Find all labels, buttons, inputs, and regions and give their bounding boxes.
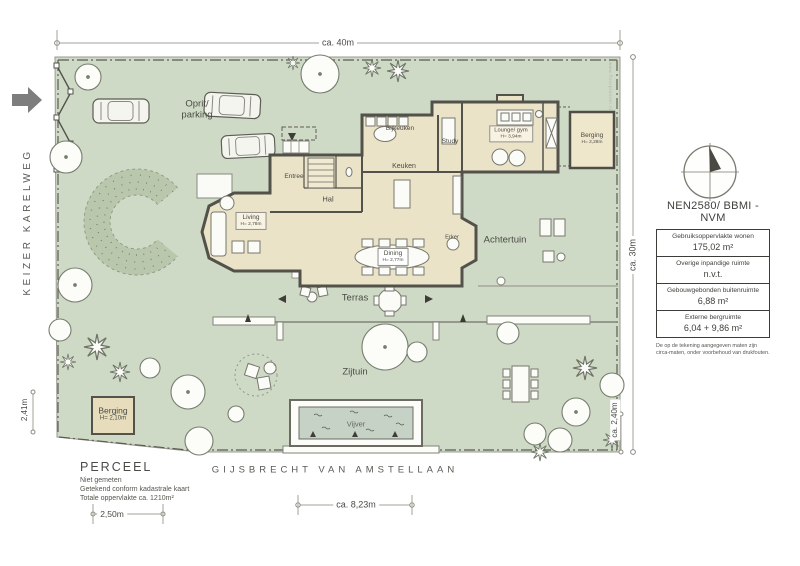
nen-footnote: De op de tekening aangegeven maten zijn … [656, 343, 770, 358]
room-keuken-label: Keuken [392, 163, 416, 171]
pond-label: Vijver [347, 420, 366, 429]
nen-row-wonen-label: Gebruiksoppervlakte wonen [659, 233, 767, 240]
street-name-bottom: GIJSBRECHT VAN AMSTELLAAN [212, 464, 458, 475]
berging-attached-height: H= 2,28m [581, 140, 603, 146]
street-entry-arrow-icon [12, 87, 42, 113]
dimension-shed: 2,50m [97, 509, 127, 519]
nen-row-overig-label: Overige inpandige ruimte [659, 260, 767, 267]
nen-box: Gebruiksoppervlakte wonen 175,02 m² Over… [656, 229, 770, 338]
nen-row-overig: Overige inpandige ruimte n.v.t. [657, 257, 769, 284]
room-living-name: Living [241, 214, 262, 222]
terrace-label: Terras [342, 292, 368, 303]
dimension-right-lower: ca. 2,40m [610, 399, 620, 440]
room-dining-height: H= 2,77m [383, 258, 404, 264]
room-lounge-label: Lounge/ gym H= 3,94m [489, 125, 533, 142]
nen-row-buitenruimte-value: 6,88 m² [659, 296, 767, 306]
room-dining-label: Dining H= 2,77m [378, 248, 409, 266]
dimension-top: ca. 40m [319, 38, 357, 49]
driveway-label-line1: Oprit/ [181, 99, 212, 110]
nen-title: NEN2580/ BBMI - NVM [656, 200, 770, 224]
room-hal-label: Hal [322, 195, 333, 204]
nen-row-bergruimte: Externe bergruimte 6,04 + 9,86 m² [657, 311, 769, 337]
nen-row-bergruimte-label: Externe bergruimte [659, 314, 767, 321]
site-plan: KEIZER KARELWEG GIJSBRECHT VAN AMSTELLAA… [0, 0, 800, 566]
dimension-right: ca. 30m [628, 236, 639, 274]
parcel-line-2: Getekend conform kadastrale kaart [80, 486, 189, 493]
driveway-label: Oprit/ parking [181, 99, 212, 122]
dimension-bottom: ca. 8,23m [333, 500, 379, 511]
nen-row-wonen-value: 175,02 m² [659, 242, 767, 252]
room-living-height: H= 2,78m [241, 222, 262, 228]
parcel-line-1: Niet gemeten [80, 477, 122, 484]
garden-path [197, 174, 232, 198]
room-dining-name: Dining [383, 250, 404, 258]
driveway-label-line2: parking [181, 110, 212, 121]
room-bijkeuken-label: Bijkeuken [386, 125, 414, 133]
dimension-left-lower: 2,41m [20, 396, 30, 424]
berging-attached-name: Berging [581, 132, 603, 140]
room-study-label: Study [442, 138, 459, 146]
stairs [308, 158, 334, 188]
side-garden-label: Zijtuin [342, 366, 367, 377]
watermark: www.floorplanner.nl [608, 62, 613, 111]
nen-row-buitenruimte: Gebouwgebonden buitenruimte 6,88 m² [657, 284, 769, 311]
shed-height: H= 2,10m [98, 416, 127, 423]
parcel-title: PERCEEL [80, 460, 152, 474]
room-entree-label: Entree [284, 173, 303, 181]
shed-label: Berging H= 2,10m [98, 405, 127, 422]
room-living-label: Living H= 2,78m [236, 212, 267, 230]
room-berging-attached-label: Berging H= 2,28m [581, 132, 603, 146]
room-lounge-height: H= 3,94m [494, 135, 528, 141]
compass-icon [681, 143, 739, 201]
nen-row-buitenruimte-label: Gebouwgebonden buitenruimte [659, 287, 767, 294]
shed-name: Berging [98, 405, 127, 415]
nen-row-wonen: Gebruiksoppervlakte wonen 175,02 m² [657, 230, 769, 257]
nen-row-overig-value: n.v.t. [659, 269, 767, 279]
room-erker-label: Erker [445, 235, 459, 242]
parcel-line-3: Totale oppervlakte ca. 1210m² [80, 495, 174, 502]
nen2580-table: NEN2580/ BBMI - NVM Gebruiksoppervlakte … [656, 200, 770, 358]
back-garden-label: Achtertuin [484, 234, 527, 245]
nen-row-bergruimte-value: 6,04 + 9,86 m² [659, 323, 767, 333]
street-name-left: KEIZER KARELWEG [22, 148, 34, 295]
